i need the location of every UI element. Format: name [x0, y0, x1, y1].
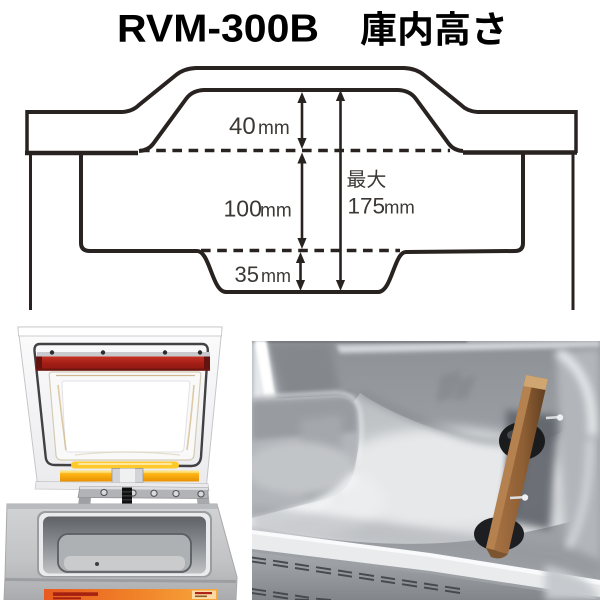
svg-text:100: 100: [224, 196, 262, 222]
svg-text:35: 35: [235, 262, 259, 287]
svg-text:mm: mm: [261, 266, 291, 286]
svg-text:mm: mm: [258, 118, 290, 139]
svg-text:175: 175: [348, 193, 386, 218]
svg-text:RVM-300B: RVM-300B: [117, 8, 319, 51]
svg-text:mm: mm: [260, 201, 292, 222]
svg-text:mm: mm: [384, 196, 415, 217]
svg-text:40: 40: [229, 113, 256, 140]
